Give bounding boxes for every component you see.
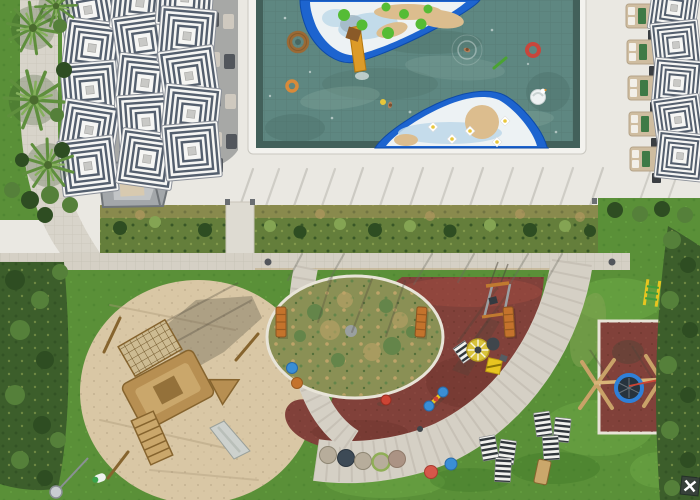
island-shrub: [416, 19, 427, 30]
hedge-dry-top: [100, 205, 600, 218]
hedge-tree: [368, 223, 382, 237]
play-ball-blue: [445, 458, 457, 470]
swim-ring-yellow: [380, 99, 386, 105]
spring-rocker: [381, 395, 391, 405]
stool-orange: [292, 378, 303, 389]
hedge-tree: [444, 225, 457, 238]
water-sparkle: [555, 131, 558, 134]
hedge-dry-patch: [135, 210, 145, 220]
orange-bench: [415, 307, 429, 340]
stepping-stone: [373, 454, 390, 471]
hedge-bush: [36, 351, 54, 369]
nest-swing-shadow: [612, 340, 644, 364]
hedge-tree: [404, 220, 416, 232]
stepping-stone: [338, 450, 355, 467]
ground-marker: [680, 476, 700, 496]
hedge-bush: [664, 480, 680, 496]
hedge-dry-patch: [315, 209, 325, 219]
water-sparkle: [284, 17, 287, 20]
island-shrub: [382, 27, 394, 39]
hedge-tree: [523, 223, 537, 237]
hedge-bush: [663, 231, 681, 249]
stone-path-joints: [0, 253, 630, 270]
hedge-bush: [654, 201, 670, 217]
island-shrub: [424, 5, 433, 14]
shrub: [4, 182, 20, 198]
stepping-stone: [320, 447, 337, 464]
hedge-tree: [584, 225, 596, 237]
scene-canvas: [0, 0, 700, 500]
hedge-dry-patch: [425, 211, 435, 221]
lounge-chair: [224, 54, 235, 69]
hedge-bush: [50, 432, 66, 448]
seesaw-pivot: [434, 397, 439, 402]
striped-parasol: [162, 121, 223, 182]
donut-float: [290, 34, 307, 51]
shrub: [21, 191, 39, 209]
bollard-light: [225, 199, 230, 205]
garden-shrub: [379, 299, 393, 313]
striped-parasol: [654, 130, 700, 182]
hedge-tree: [484, 219, 496, 231]
stool-blue: [287, 363, 298, 374]
hedge-bush: [37, 470, 53, 486]
concrete-crossing: [226, 202, 254, 254]
garden-tuft: [320, 320, 340, 340]
island-shrub: [338, 9, 350, 21]
waste-bin: [609, 259, 616, 266]
water-shade: [265, 114, 325, 142]
hedge-bush: [682, 322, 698, 338]
seesaw-seat: [424, 401, 434, 411]
striped-towel: [533, 411, 552, 437]
island-shrub: [382, 3, 391, 12]
water-sparkle: [409, 111, 412, 114]
garden-tuft: [337, 292, 353, 308]
island-sand-patch: [394, 134, 418, 146]
ground-peg: [417, 426, 423, 432]
hedge-bush: [5, 385, 25, 405]
hedge-bush: [52, 264, 68, 280]
hedge-bush: [661, 421, 679, 439]
garden-shrub: [294, 330, 306, 342]
water-sparkle: [309, 71, 311, 73]
shrub: [54, 142, 70, 158]
lounge-chair: [225, 94, 236, 109]
hedge-dry-patch: [575, 212, 585, 222]
island-shrub: [357, 20, 368, 31]
hedge-bush: [680, 257, 696, 273]
shrub: [15, 153, 29, 167]
island-shrub: [399, 9, 409, 19]
spinner-hub: [475, 347, 482, 354]
hedge-bush: [5, 270, 25, 290]
water-sparkle: [269, 95, 271, 97]
hedge-bush: [33, 416, 51, 434]
shrub: [53, 19, 67, 33]
lounge-chair: [223, 14, 234, 29]
waste-bin: [265, 259, 272, 266]
aerial-resort-photo: [0, 0, 700, 500]
hedge-bush: [680, 387, 696, 403]
hedge-bush: [659, 356, 677, 374]
water-sparkle: [527, 63, 529, 65]
hedge-tree: [198, 223, 212, 237]
hedge-bush: [680, 452, 696, 468]
lounge-chair: [226, 134, 237, 149]
hedge-bush: [11, 451, 29, 469]
shrub: [62, 197, 78, 213]
shrub: [50, 108, 64, 122]
play-pod: [487, 338, 500, 351]
shrub: [56, 62, 72, 78]
orange-bench: [503, 307, 517, 340]
garden-shrub: [383, 337, 401, 355]
seesaw-seat: [438, 387, 448, 397]
play-ball-red: [425, 466, 438, 479]
water-sparkle: [491, 29, 494, 32]
hedge-bush: [632, 206, 648, 222]
garden-shrub: [331, 353, 345, 367]
striped-towel: [542, 435, 560, 460]
hedge-tree: [149, 216, 161, 228]
shrub: [41, 186, 59, 204]
hedge-bush: [31, 291, 49, 309]
bollard-light: [592, 198, 597, 204]
hedge-tree: [264, 220, 276, 232]
hedge-bush: [661, 291, 679, 309]
stepping-stone: [355, 453, 372, 470]
garden-tuft: [363, 343, 381, 361]
hedge-tree: [334, 218, 346, 230]
hedge-bush: [10, 320, 30, 340]
water-sparkle: [331, 117, 334, 120]
bollard-light: [250, 199, 255, 205]
striped-towel: [494, 458, 511, 483]
hedge-tree: [559, 220, 571, 232]
slide-splash: [355, 72, 369, 80]
hedge-dry-patch: [515, 209, 525, 219]
shrub: [37, 207, 53, 223]
hedge-bush: [677, 207, 693, 223]
hedge-bush: [607, 202, 623, 218]
hedge-tree: [113, 221, 127, 235]
hedge-tree: [294, 226, 307, 239]
stepping-stone: [389, 451, 406, 468]
boulder: [345, 325, 357, 337]
orange-bench: [276, 307, 288, 339]
